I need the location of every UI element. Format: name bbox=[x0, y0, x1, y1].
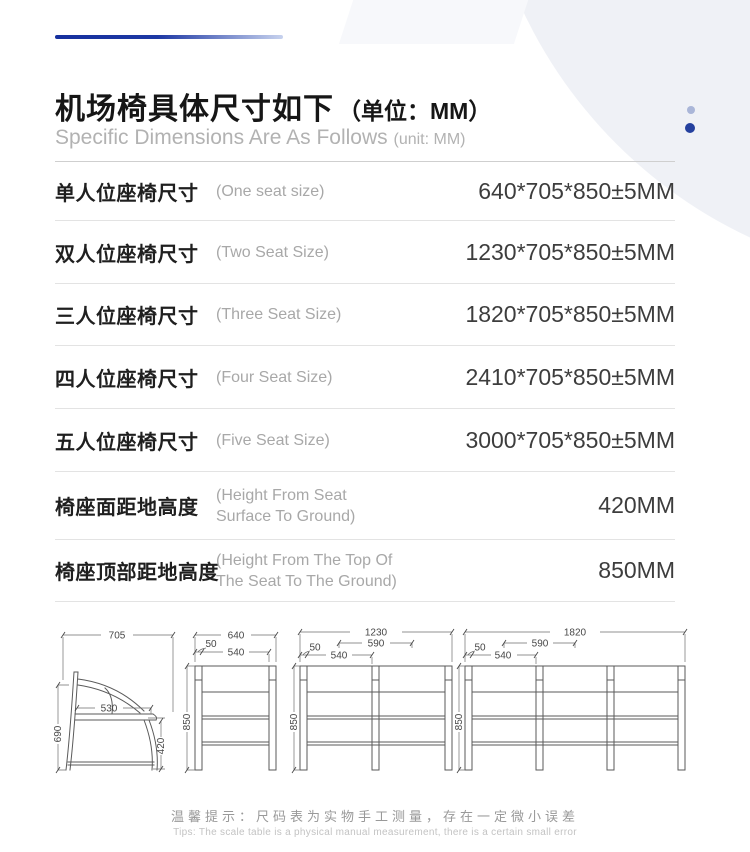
decor-dot-dark bbox=[685, 123, 695, 133]
table-row-one-seat: 单人位座椅尺寸 (One seat size) 640*705*850±5MM bbox=[55, 162, 675, 221]
dim-total-width-label: 640 bbox=[228, 631, 245, 642]
row-value: 420MM bbox=[598, 492, 675, 519]
row-label-zh: 四人位座椅尺寸 bbox=[55, 363, 216, 392]
side-view-diagram: 705 530 690 420 bbox=[55, 624, 180, 782]
row-value: 1230*705*850±5MM bbox=[465, 239, 675, 266]
row-value: 640*705*850±5MM bbox=[478, 178, 675, 205]
dim-back-height-label: 690 bbox=[53, 725, 64, 742]
dim-seat-pitch-label: 590 bbox=[368, 639, 385, 650]
row-label-en: (One seat size) bbox=[216, 181, 324, 202]
chair-front-outline bbox=[300, 666, 452, 770]
row-label-en: (Height From The Top Of The Seat To The … bbox=[216, 550, 397, 592]
dim-armrest-width-label: 50 bbox=[309, 643, 321, 654]
row-label-en-line1: (Height From Seat bbox=[216, 485, 355, 506]
row-label-en-line2: The Seat To The Ground) bbox=[216, 571, 397, 592]
dim-seat-pitch-label: 590 bbox=[532, 639, 549, 650]
three-seat-diagram: 1820 590 50 540 850 bbox=[455, 624, 698, 782]
dim-total-depth-label: 705 bbox=[109, 631, 126, 642]
dim-total-height-label: 850 bbox=[182, 713, 193, 730]
chair-front-outline bbox=[465, 666, 685, 770]
subtitle-unit: (unit: MM) bbox=[393, 131, 465, 148]
footer-tip-en: Tips: The scale table is a physical manu… bbox=[0, 827, 750, 838]
row-label-zh: 五人位座椅尺寸 bbox=[55, 426, 216, 455]
subtitle-en: Specific Dimensions Are As Follows bbox=[55, 126, 388, 149]
dim-seat-width-label: 540 bbox=[495, 651, 512, 662]
row-label-zh: 单人位座椅尺寸 bbox=[55, 177, 216, 206]
page-subtitle: Specific Dimensions Are As Follows (unit… bbox=[55, 126, 465, 150]
table-row-seat-height: 椅座面距地高度 (Height From Seat Surface To Gro… bbox=[55, 472, 675, 540]
spec-sheet-page: 机场椅具体尺寸如下（单位：MM） Specific Dimensions Are… bbox=[0, 0, 750, 852]
chair-front-outline bbox=[195, 666, 276, 770]
dimension-table: 单人位座椅尺寸 (One seat size) 640*705*850±5MM … bbox=[55, 161, 675, 602]
row-label-zh: 椅座顶部距地高度 bbox=[55, 556, 216, 585]
row-value: 3000*705*850±5MM bbox=[465, 427, 675, 454]
row-label-en-line2: Surface To Ground) bbox=[216, 506, 355, 527]
row-value: 1820*705*850±5MM bbox=[465, 301, 675, 328]
row-label-en: (Four Seat Size) bbox=[216, 367, 332, 388]
footer-tip-zh: 温馨提示：尺码表为实物手工测量，存在一定微小误差 bbox=[0, 806, 750, 825]
row-label-en: (Three Seat Size) bbox=[216, 304, 341, 325]
title-zh: 机场椅具体尺寸如下 bbox=[55, 93, 334, 126]
dim-total-height-label: 850 bbox=[454, 713, 465, 730]
dim-seat-height-label: 420 bbox=[156, 737, 167, 754]
row-label-zh: 椅座面距地高度 bbox=[55, 491, 216, 520]
row-label-en: (Five Seat Size) bbox=[216, 430, 330, 451]
row-value: 850MM bbox=[598, 557, 675, 584]
dim-armrest-width-label: 50 bbox=[474, 643, 486, 654]
page-title: 机场椅具体尺寸如下（单位：MM） bbox=[55, 84, 491, 128]
row-label-en: (Height From Seat Surface To Ground) bbox=[216, 485, 355, 527]
table-row-three-seat: 三人位座椅尺寸 (Three Seat Size) 1820*705*850±5… bbox=[55, 284, 675, 346]
table-row-top-height: 椅座顶部距地高度 (Height From The Top Of The Sea… bbox=[55, 540, 675, 602]
row-value: 2410*705*850±5MM bbox=[465, 364, 675, 391]
dimension-lines bbox=[457, 629, 687, 773]
dim-total-width-label: 1820 bbox=[564, 628, 587, 639]
decor-dot-light bbox=[687, 106, 695, 114]
chair-side-outline bbox=[66, 672, 157, 770]
table-row-two-seat: 双人位座椅尺寸 (Two Seat Size) 1230*705*850±5MM bbox=[55, 221, 675, 284]
row-label-en-line1: (Height From The Top Of bbox=[216, 550, 397, 571]
dim-seat-width-label: 540 bbox=[228, 648, 245, 659]
technical-drawings: 705 530 690 420 640 50 540 850 bbox=[55, 622, 705, 794]
title-unit: （单位：MM） bbox=[338, 98, 491, 124]
table-row-four-seat: 四人位座椅尺寸 (Four Seat Size) 2410*705*850±5M… bbox=[55, 346, 675, 409]
two-seat-diagram: 1230 590 50 540 850 bbox=[290, 624, 462, 782]
dim-armrest-width-label: 50 bbox=[205, 639, 217, 650]
accent-gradient-bar bbox=[55, 35, 283, 39]
row-label-zh: 双人位座椅尺寸 bbox=[55, 238, 216, 267]
dim-total-height-label: 850 bbox=[289, 713, 300, 730]
row-label-en: (Two Seat Size) bbox=[216, 242, 329, 263]
row-label-zh: 三人位座椅尺寸 bbox=[55, 300, 216, 329]
dim-total-width-label: 1230 bbox=[365, 628, 388, 639]
one-seat-diagram: 640 50 540 850 bbox=[183, 624, 288, 782]
table-row-five-seat: 五人位座椅尺寸 (Five Seat Size) 3000*705*850±5M… bbox=[55, 409, 675, 472]
decor-diagonal-band bbox=[339, 0, 532, 44]
dim-seat-width-label: 540 bbox=[331, 651, 348, 662]
dim-seat-depth-label: 530 bbox=[101, 704, 118, 715]
